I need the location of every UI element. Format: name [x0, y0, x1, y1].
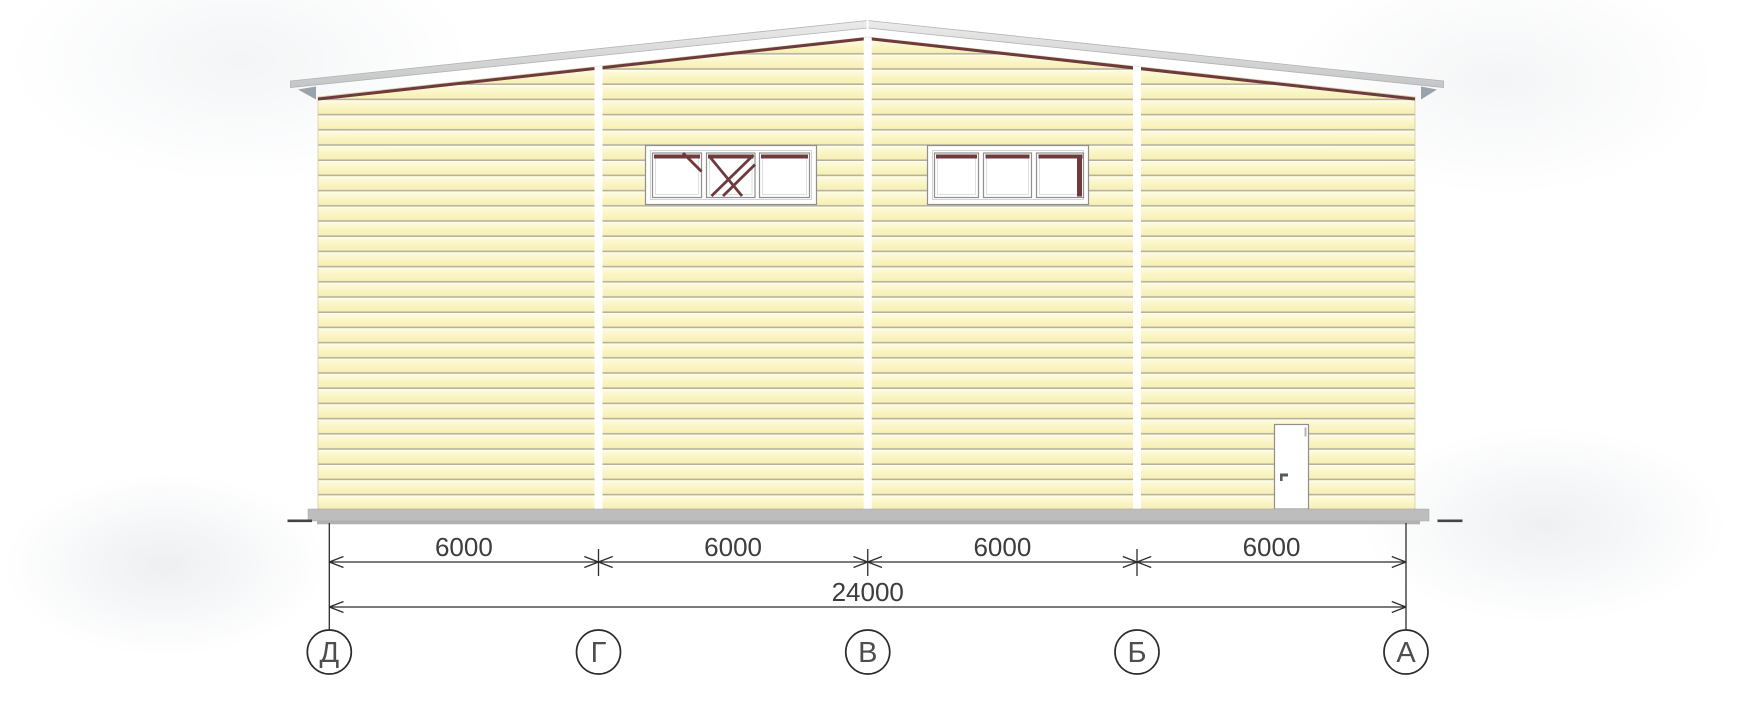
grid-bubble-g-label: Г	[591, 637, 607, 669]
window-left-head-bars	[654, 155, 808, 159]
window-left-pane-3	[760, 153, 810, 198]
eave-end-cap-right-icon	[1421, 87, 1437, 100]
dimensions: 6000 6000 6000 6000 24000	[329, 523, 1406, 630]
window-right-pane-3	[1037, 153, 1084, 198]
window-left	[646, 146, 817, 205]
roof-apex-seam	[867, 20, 869, 31]
panel-joint-axis-b	[1133, 40, 1141, 509]
panel-joint-axis-v	[864, 28, 872, 509]
foundation	[288, 509, 1463, 524]
total-dim-label: 24000	[832, 577, 904, 607]
grid-bubble-v-label: В	[858, 637, 877, 669]
foundation-slab	[308, 509, 1429, 521]
foundation-slab-lip	[317, 521, 1420, 525]
grid-bubble-d-label: Д	[319, 637, 339, 669]
bay-dim-label-4: 6000	[1243, 532, 1301, 562]
window-right	[928, 146, 1089, 205]
window-left-pane-1	[653, 153, 702, 198]
window-right-pane-1	[935, 153, 979, 198]
building-facade	[291, 20, 1444, 510]
door-hinge-mark	[1305, 428, 1307, 437]
panel-joint-axis-g	[595, 40, 603, 509]
door-leaf	[1275, 425, 1309, 510]
grid-bubble-b-label: Б	[1127, 637, 1146, 669]
elevation-drawing-canvas: 6000 6000 6000 6000 24000 Д Г В Б А	[0, 0, 1737, 720]
entry-door	[1275, 425, 1309, 510]
eave-end-cap-left-icon	[298, 87, 316, 100]
grid-bubble-a-label: А	[1396, 637, 1416, 669]
bay-dim-label-3: 6000	[973, 532, 1031, 562]
elevation-drawing: 6000 6000 6000 6000 24000 Д Г В Б А	[0, 0, 1737, 720]
window-right-pane-2	[984, 153, 1032, 198]
bay-dim-label-2: 6000	[704, 532, 762, 562]
bay-dim-label-1: 6000	[435, 532, 493, 562]
grid-axis-bubbles: Д Г В Б А	[307, 630, 1428, 674]
